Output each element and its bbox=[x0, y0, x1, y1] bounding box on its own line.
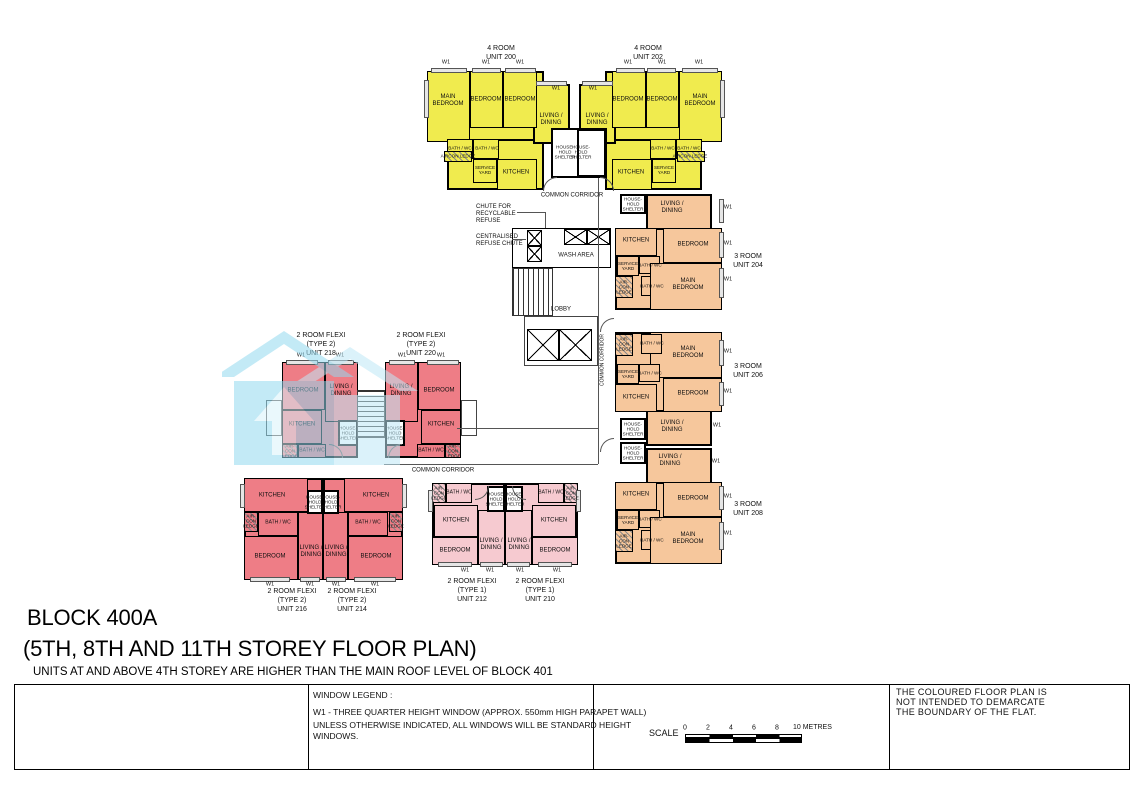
window-bar bbox=[240, 484, 245, 508]
room-label-bath-wc: BATH / WC bbox=[640, 284, 663, 289]
room-label-kitchen: KITCHEN bbox=[541, 518, 567, 525]
window-bar bbox=[720, 80, 725, 118]
plan-title-block: BLOCK 400A bbox=[27, 605, 157, 631]
common-corridor-label-vertical: COMMON CORRIDOR bbox=[600, 334, 607, 386]
room-label-bedroom: BEDROOM bbox=[470, 97, 501, 104]
window-bar bbox=[472, 68, 501, 73]
common-corridor-label: COMMON CORRIDOR bbox=[412, 468, 474, 475]
window-bar bbox=[328, 360, 354, 365]
room-label-bedroom: BEDROOM bbox=[439, 548, 470, 555]
room-label-living-dining: LIVING / DINING bbox=[507, 538, 530, 552]
room-label-household-shelter: HOUSE- HOLD SHELTER bbox=[623, 197, 644, 212]
room-label-household-shelter: HOUSE- HOLD SHELTER bbox=[623, 446, 644, 461]
room-label-kitchen: KITCHEN bbox=[428, 422, 454, 429]
common-corridor-label: COMMON CORRIDOR bbox=[541, 193, 603, 200]
chute-centralised-label: CENTRALISED REFUSE CHUTE bbox=[476, 234, 523, 248]
window-label-w1: W1 bbox=[724, 349, 732, 356]
window-label-w1: W1 bbox=[724, 494, 732, 501]
room-label-bath-wc: BATH / WC bbox=[640, 341, 663, 346]
unit-220-bay-window bbox=[461, 400, 477, 436]
room-label-main-bedroom: MAIN BEDROOM bbox=[432, 94, 463, 108]
room-label-service-yard: SERVICE YARD bbox=[475, 165, 495, 175]
window-label-w1: W1 bbox=[724, 241, 732, 248]
room-label-bath-wc: BATH / WC bbox=[640, 538, 663, 543]
room-label-bath-wc: BATH / WC bbox=[448, 146, 471, 151]
room-label-service-yard: SERVICE YARD bbox=[654, 165, 674, 175]
room-label-kitchen: KITCHEN bbox=[503, 170, 529, 177]
door-arc bbox=[600, 318, 614, 332]
room-label-service-yard: SERVICE YARD bbox=[618, 261, 638, 271]
room-label-main-bedroom: MAIN BEDROOM bbox=[672, 532, 703, 546]
staircase bbox=[512, 268, 553, 316]
window-bar bbox=[402, 484, 407, 508]
leader-line bbox=[545, 212, 546, 228]
window-label-w1: W1 bbox=[461, 568, 469, 575]
wash-area-label: WASH AREA bbox=[558, 253, 593, 260]
room-label-household-shelter: HOUSE- HOLD SHELTER bbox=[571, 145, 592, 160]
unit-216-title: 2 ROOM FLEXI (TYPE 2) UNIT 216 bbox=[267, 588, 316, 614]
window-bar bbox=[389, 360, 415, 365]
window-label-w1: W1 bbox=[695, 60, 703, 67]
room-label-aircon-ledge: AIR- CON LEDGE bbox=[431, 486, 447, 501]
window-bar bbox=[505, 68, 536, 73]
scale-tick-4: 4 bbox=[729, 726, 733, 733]
scale-tick-2: 2 bbox=[706, 726, 710, 733]
refuse-chute bbox=[527, 230, 542, 246]
unit-212-title: 2 ROOM FLEXI (TYPE 1) UNIT 212 bbox=[447, 578, 496, 604]
room-label-aircon-ledge: AIRCON LEDGE bbox=[673, 154, 708, 159]
leader-line bbox=[517, 212, 545, 213]
room-label-aircon-ledge: AIR- CON LEDGE bbox=[388, 514, 404, 529]
window-bar bbox=[582, 81, 613, 86]
recyclable-chute bbox=[564, 229, 587, 245]
room-label-bedroom: BEDROOM bbox=[677, 496, 708, 503]
corridor-edge-line bbox=[598, 178, 599, 464]
room-label-living-dining: LIVING / DINING bbox=[299, 545, 322, 559]
room-label-main-bedroom: MAIN BEDROOM bbox=[672, 346, 703, 360]
window-label-w1: W1 bbox=[552, 86, 560, 93]
unit-200-title: 4 ROOM UNIT 200 bbox=[486, 45, 516, 63]
window-bar bbox=[427, 360, 459, 365]
legend-divider bbox=[889, 684, 890, 770]
window-bar bbox=[480, 562, 503, 567]
window-bar bbox=[682, 68, 718, 73]
unit-218-title: 2 ROOM FLEXI (TYPE 2) UNIT 218 bbox=[296, 332, 345, 358]
room-label-bath-wc: BATH / WC bbox=[446, 490, 471, 496]
legend-divider bbox=[308, 684, 309, 770]
room-label-living-dining: LIVING / DINING bbox=[324, 545, 347, 559]
room-label-living-dining: LIVING / DINING bbox=[479, 538, 502, 552]
window-bar bbox=[507, 562, 530, 567]
room-label-bedroom: BEDROOM bbox=[423, 388, 454, 395]
room-label-kitchen: KITCHEN bbox=[443, 518, 469, 525]
lift-shaft bbox=[527, 329, 559, 361]
unit-220-title: 2 ROOM FLEXI (TYPE 2) UNIT 220 bbox=[396, 332, 445, 358]
room-label-kitchen: KITCHEN bbox=[623, 395, 649, 402]
window-bar bbox=[286, 360, 318, 365]
room-label-bath-wc: BATH / WC bbox=[355, 520, 380, 526]
unit-214-title: 2 ROOM FLEXI (TYPE 2) UNIT 214 bbox=[327, 588, 376, 614]
window-label-w1: W1 bbox=[624, 60, 632, 67]
room-label-aircon-ledge: AIR- CON LEDGE bbox=[616, 534, 632, 549]
unit-220-bedroom bbox=[418, 362, 461, 410]
window-label-w1: W1 bbox=[486, 568, 494, 575]
room-label-bedroom: BEDROOM bbox=[539, 548, 570, 555]
room-label-bath-wc: BATH / WC bbox=[638, 263, 661, 268]
room-label-living-dining: LIVING / DINING bbox=[660, 201, 683, 215]
unit-218-bay-window bbox=[266, 400, 282, 436]
unit-218-bedroom bbox=[282, 362, 325, 410]
floor-plan-sheet: MAIN BEDROOM BEDROOM BEDROOM LIVING / DI… bbox=[0, 0, 1144, 792]
scale-tick-6: 6 bbox=[752, 726, 756, 733]
room-label-household-shelter: HOUSE- HOLD SHELTER bbox=[385, 426, 406, 441]
room-label-aircon-ledge: AIR- CON LEDGE bbox=[243, 514, 259, 529]
window-label-w1: W1 bbox=[516, 60, 524, 67]
room-label-main-bedroom: MAIN BEDROOM bbox=[684, 94, 715, 108]
room-label-bedroom: BEDROOM bbox=[646, 97, 677, 104]
window-bar bbox=[431, 68, 467, 73]
window-label-w1: W1 bbox=[724, 389, 732, 396]
window-label-w1: W1 bbox=[516, 568, 524, 575]
room-label-bedroom: BEDROOM bbox=[360, 554, 391, 561]
room-label-bath-wc: BATH / WC bbox=[418, 448, 443, 454]
refuse-chute bbox=[527, 246, 542, 262]
room-label-main-bedroom: MAIN BEDROOM bbox=[672, 278, 703, 292]
coloured-plan-disclaimer: THE COLOURED FLOOR PLAN IS NOT INTENDED … bbox=[896, 687, 1047, 718]
room-label-bedroom: BEDROOM bbox=[677, 242, 708, 249]
room-label-household-shelter: HOUSE- HOLD SHELTER bbox=[504, 492, 525, 507]
window-label-w1: W1 bbox=[589, 86, 597, 93]
room-label-living-dining: LIVING / DINING bbox=[329, 384, 352, 398]
room-label-aircon-ledge: AIR- CON LEDGE bbox=[445, 444, 461, 459]
window-bar bbox=[424, 80, 429, 118]
room-label-bath-wc: BATH / WC bbox=[538, 490, 563, 496]
window-legend-w1-line: W1 - THREE QUARTER HEIGHT WINDOW (APPROX… bbox=[313, 707, 646, 717]
corridor-edge-line bbox=[384, 464, 598, 465]
lobby-label: LOBBY bbox=[551, 307, 571, 314]
room-label-bath-wc: BATH / WC bbox=[651, 146, 674, 151]
window-label-w1: W1 bbox=[712, 459, 720, 466]
room-label-household-shelter: HOUSE- HOLD SHELTER bbox=[321, 495, 342, 510]
room-label-bath-wc: BATH / WC bbox=[475, 146, 498, 151]
room-label-bedroom: BEDROOM bbox=[287, 388, 318, 395]
room-label-aircon-ledge: AIR- CON LEDGE bbox=[563, 486, 579, 501]
room-label-living-dining: LIVING / DINING bbox=[389, 384, 412, 398]
room-label-kitchen: KITCHEN bbox=[289, 422, 315, 429]
scale-tick-8: 8 bbox=[775, 726, 779, 733]
window-label-w1: W1 bbox=[442, 60, 450, 67]
window-bar bbox=[438, 562, 472, 567]
unit-202-title: 4 ROOM UNIT 202 bbox=[633, 45, 663, 63]
room-label-bath-wc: BATH / WC bbox=[677, 146, 700, 151]
corridor-edge-line bbox=[457, 428, 598, 429]
plan-title-note: UNITS AT AND ABOVE 4TH STOREY ARE HIGHER… bbox=[33, 666, 553, 678]
room-label-service-yard: SERVICE YARD bbox=[618, 369, 638, 379]
scale-end-label: 10 METRES bbox=[793, 724, 832, 731]
room-label-household-shelter: HOUSE- HOLD SHELTER bbox=[338, 426, 359, 441]
room-label-kitchen: KITCHEN bbox=[363, 493, 389, 500]
room-label-bedroom: BEDROOM bbox=[504, 97, 535, 104]
window-bar bbox=[538, 562, 572, 567]
staircase bbox=[357, 390, 385, 438]
window-label-w1: W1 bbox=[724, 277, 732, 284]
room-label-aircon-ledge: AIRCON LEDGE bbox=[441, 154, 476, 159]
room-label-living-dining: LIVING / DINING bbox=[660, 420, 683, 434]
window-legend-heading: WINDOW LEGEND : bbox=[313, 690, 392, 700]
room-label-kitchen: KITCHEN bbox=[623, 238, 649, 245]
window-label-w1: W1 bbox=[713, 423, 721, 430]
room-label-service-yard: SERVICE YARD bbox=[618, 515, 638, 525]
room-label-bath-wc: BATH / WC bbox=[299, 448, 324, 454]
room-label-bath-wc: BATH / WC bbox=[265, 520, 290, 526]
door-arc bbox=[543, 177, 557, 191]
unit-210-title: 2 ROOM FLEXI (TYPE 1) UNIT 210 bbox=[515, 578, 564, 604]
lift-shaft bbox=[559, 329, 592, 361]
room-label-living-dining: LIVING / DINING bbox=[658, 454, 681, 468]
chute-recyclable-label: CHUTE FOR RECYCLABLE REFUSE bbox=[476, 204, 516, 224]
window-bar bbox=[647, 68, 676, 73]
scale-label: SCALE bbox=[649, 728, 679, 738]
window-label-w1: W1 bbox=[553, 568, 561, 575]
room-label-household-shelter: HOUSE- HOLD SHELTER bbox=[623, 422, 644, 437]
room-label-bath-wc: BATH / WC bbox=[638, 371, 661, 376]
room-label-bedroom: BEDROOM bbox=[612, 97, 643, 104]
unit-208-title: 3 ROOM UNIT 208 bbox=[733, 501, 763, 519]
window-label-w1: W1 bbox=[724, 531, 732, 538]
window-label-w1: W1 bbox=[724, 205, 732, 212]
window-legend-note: UNLESS OTHERWISE INDICATED, ALL WINDOWS … bbox=[313, 720, 631, 742]
room-label-aircon-ledge: AIR- CON LEDGE bbox=[616, 337, 632, 352]
room-label-bedroom: BEDROOM bbox=[677, 391, 708, 398]
window-bar bbox=[616, 68, 645, 73]
room-label-aircon-ledge: AIR- CON LEDGE bbox=[616, 280, 632, 295]
unit-204-title: 3 ROOM UNIT 204 bbox=[733, 253, 763, 271]
room-label-bedroom: BEDROOM bbox=[254, 554, 285, 561]
scale-bar-bottom bbox=[685, 738, 802, 743]
room-label-kitchen: KITCHEN bbox=[623, 492, 649, 499]
door-arc bbox=[600, 438, 614, 452]
plan-title-storey: (5TH, 8TH AND 11TH STOREY FLOOR PLAN) bbox=[23, 636, 476, 662]
room-label-kitchen: KITCHEN bbox=[259, 493, 285, 500]
room-label-living-dining: LIVING / DINING bbox=[539, 113, 562, 127]
room-label-kitchen: KITCHEN bbox=[618, 170, 644, 177]
room-label-living-dining: LIVING / DINING bbox=[585, 113, 608, 127]
room-label-bath-wc: BATH / WC bbox=[638, 517, 661, 522]
room-label-aircon-ledge: AIR- CON LEDGE bbox=[282, 444, 298, 459]
unit-206-title: 3 ROOM UNIT 206 bbox=[733, 363, 763, 381]
scale-tick-0: 0 bbox=[683, 726, 687, 733]
